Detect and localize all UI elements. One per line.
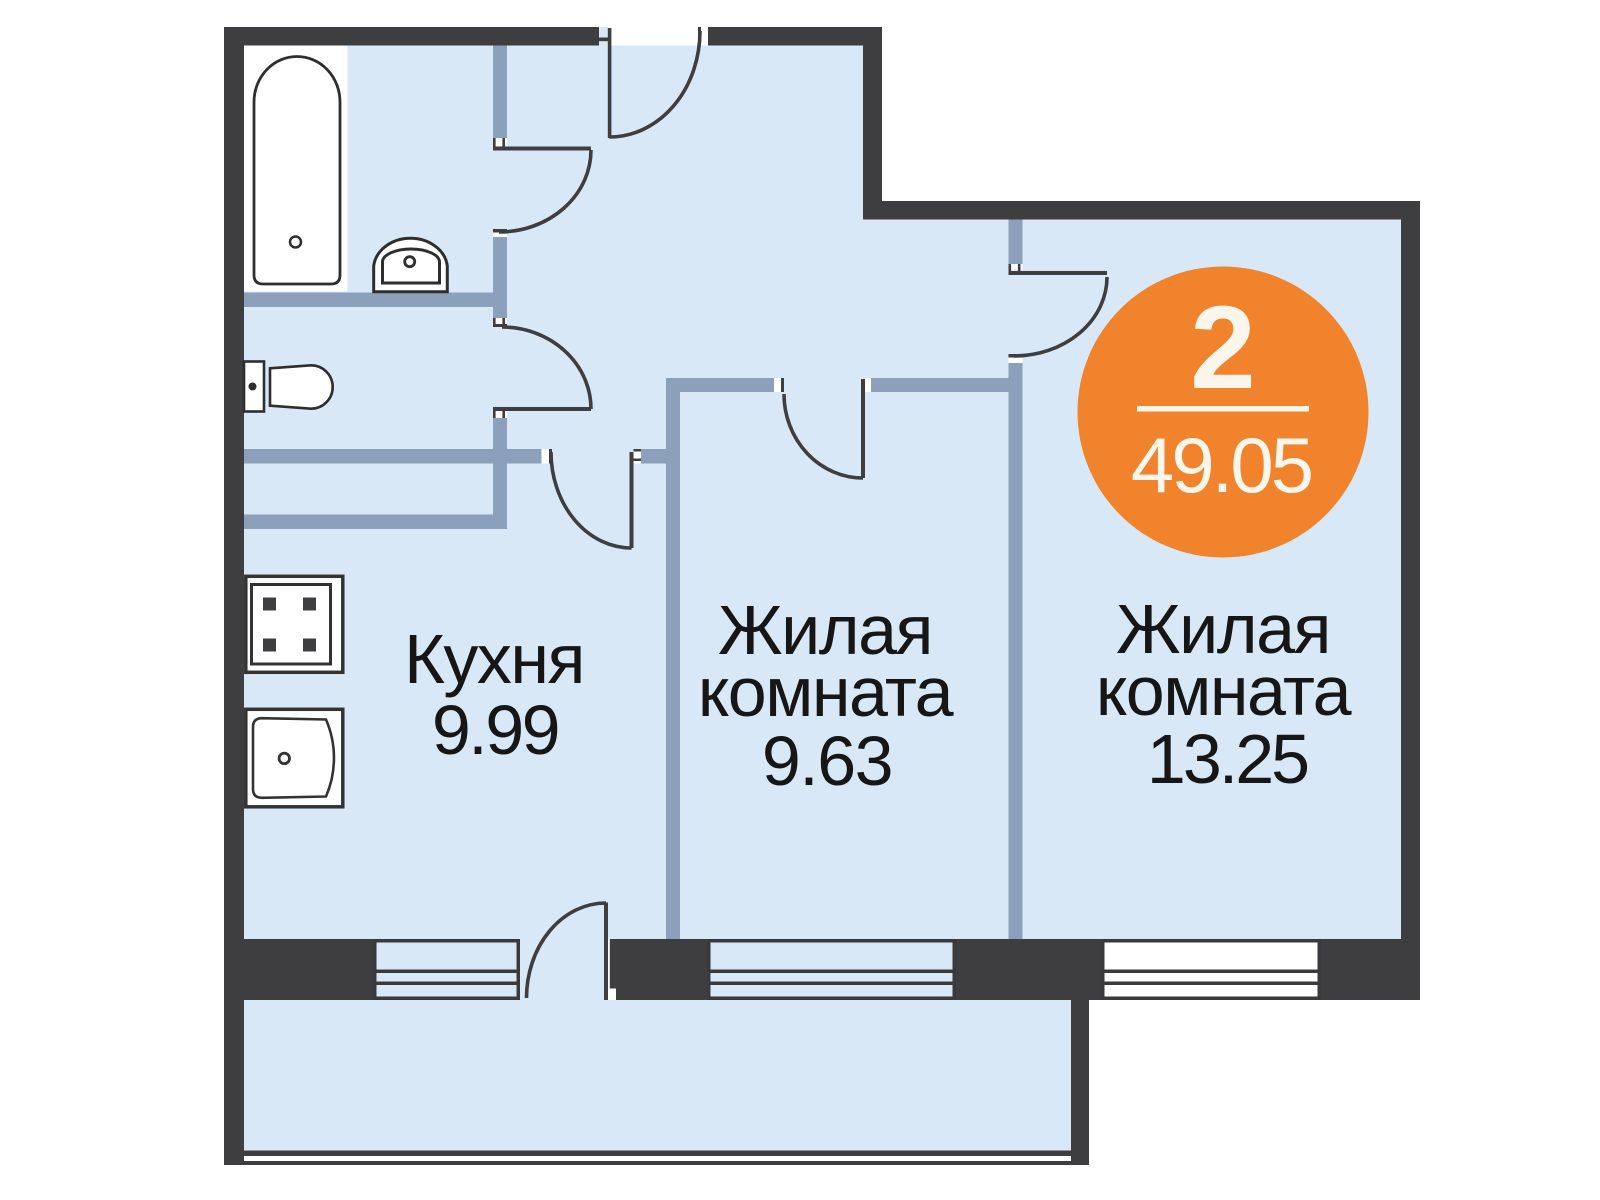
svg-text:комната: комната [698, 653, 954, 731]
svg-text:13.25: 13.25 [1147, 720, 1307, 798]
svg-text:2: 2 [1190, 282, 1256, 414]
svg-text:9.63: 9.63 [762, 722, 892, 800]
svg-text:Кухня: Кухня [404, 620, 584, 698]
svg-text:комната: комната [1096, 652, 1352, 730]
svg-text:49.05: 49.05 [1131, 421, 1312, 509]
svg-text:9.99: 9.99 [432, 691, 558, 769]
